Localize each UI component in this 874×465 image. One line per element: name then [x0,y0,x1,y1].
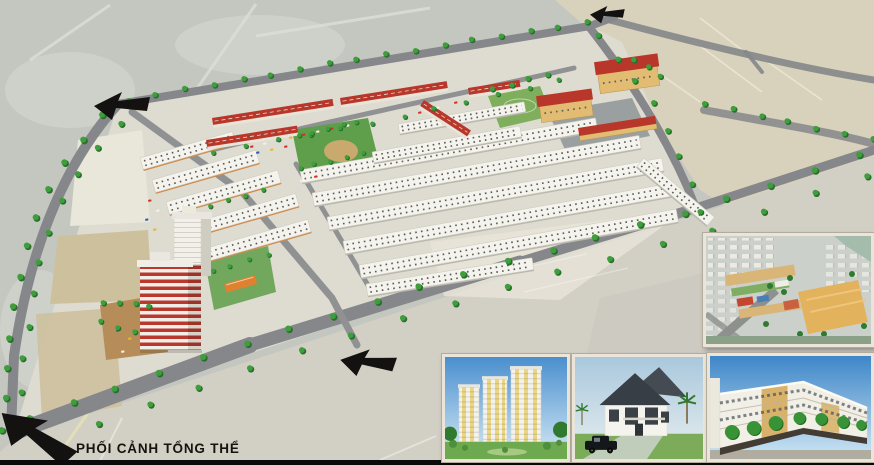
playground-circle [324,140,358,162]
shophouse-row-image [710,356,871,459]
masterplan-screenshot: PHỐI CẢNH TỔNG THỂ [0,0,874,465]
highrise-tower [137,252,202,353]
caption-label: PHỐI CẢNH TỔNG THỂ [76,441,240,456]
villa-image [575,357,703,459]
inset-shophouses [707,353,874,462]
inset-villa [572,354,706,462]
campus-aerial-image [706,236,871,344]
inset-campus-aerial [703,233,874,347]
apartment-towers-image [445,357,567,459]
inset-apartment-towers [442,354,570,462]
